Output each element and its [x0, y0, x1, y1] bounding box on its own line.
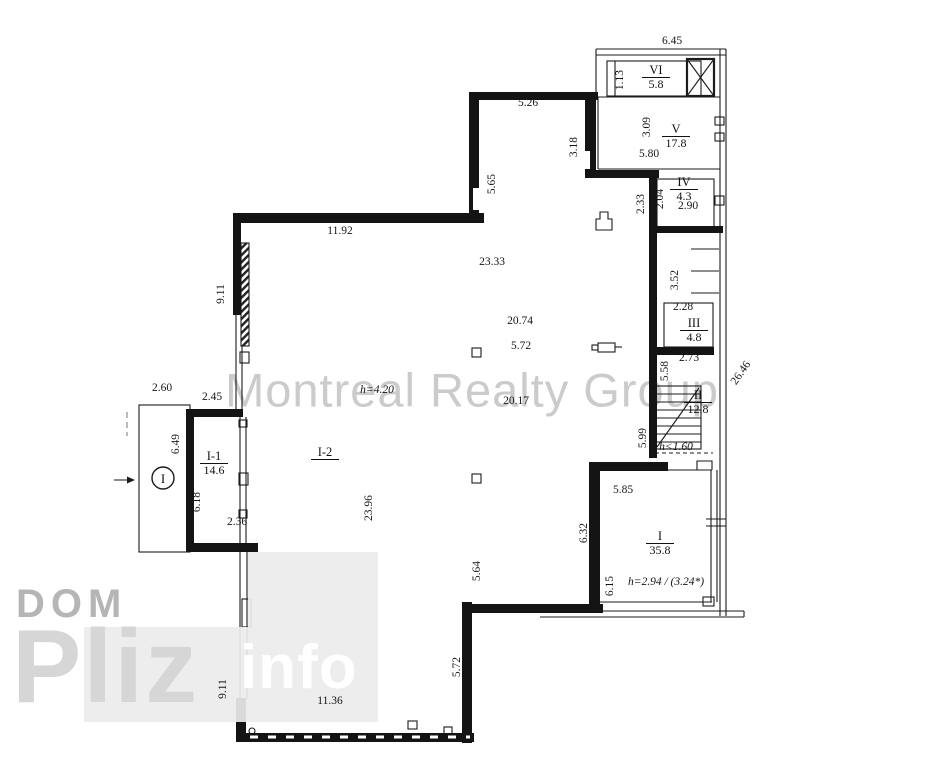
- fixture-icon: [596, 212, 612, 230]
- floorplan-drawing: I: [0, 0, 945, 768]
- door-openings: [250, 151, 590, 737]
- staircase-icon: [655, 386, 701, 449]
- circled-I-label: I: [161, 471, 165, 486]
- fixture-icon: [592, 343, 622, 352]
- floorplan-page: Montreal Realty Group: [0, 0, 945, 768]
- thick-walls: [186, 92, 723, 743]
- direction-arrow-icon: [114, 477, 135, 484]
- window-hatch-strip: [241, 243, 249, 346]
